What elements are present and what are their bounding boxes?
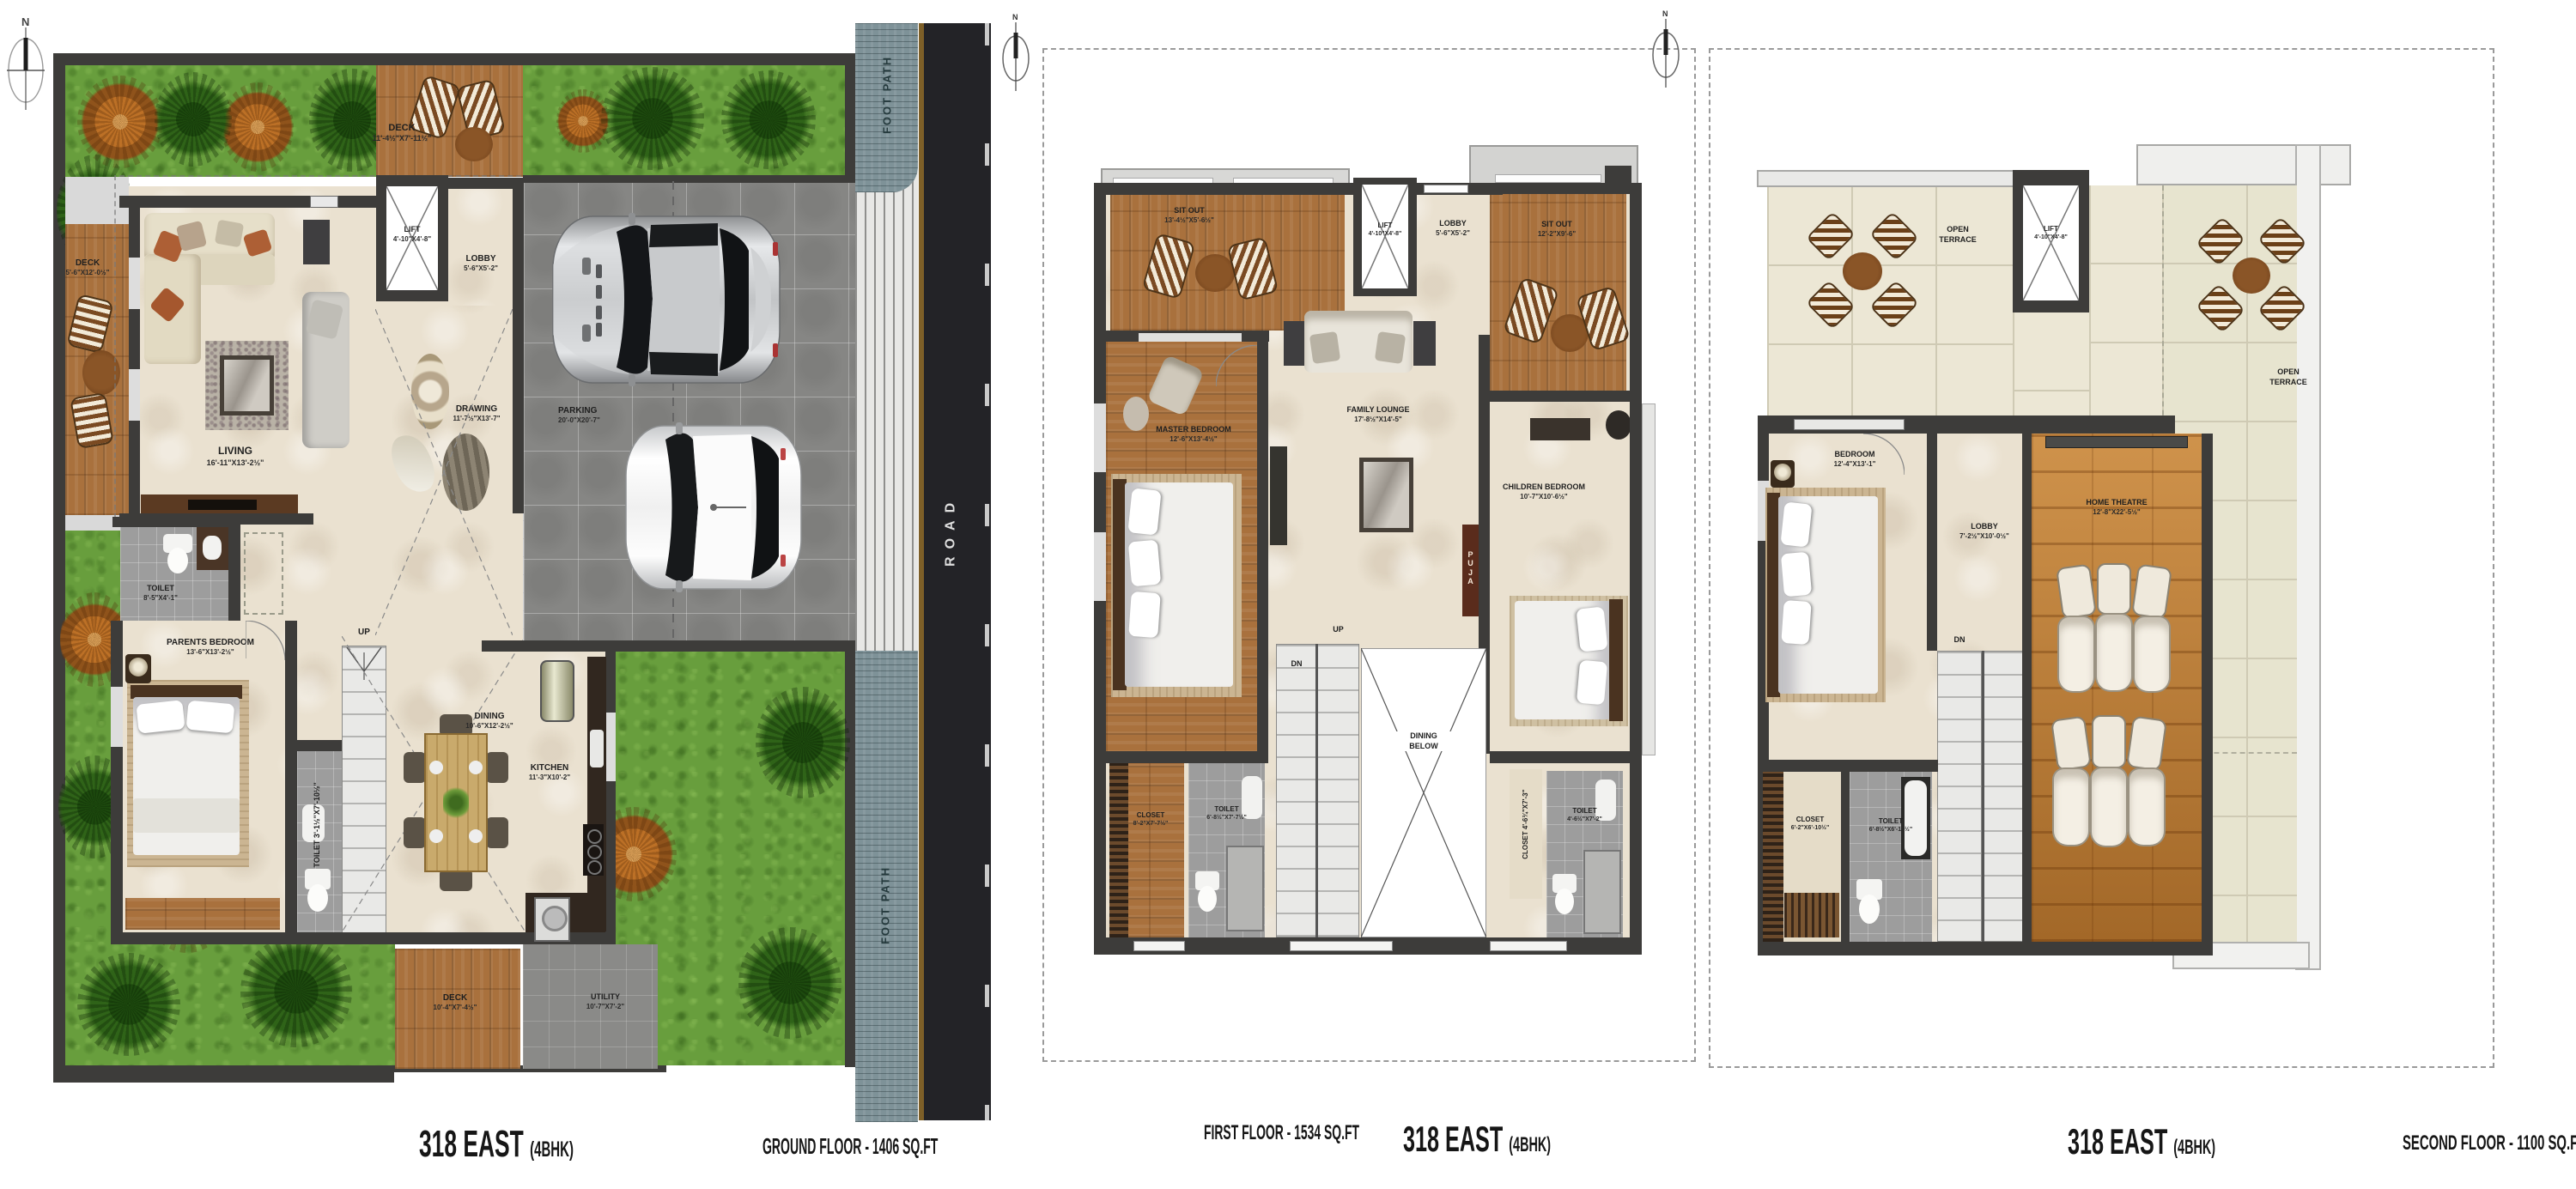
svg-text:N: N [1662, 9, 1668, 18]
svg-text:N: N [1012, 13, 1018, 21]
svg-text:N: N [21, 15, 29, 28]
